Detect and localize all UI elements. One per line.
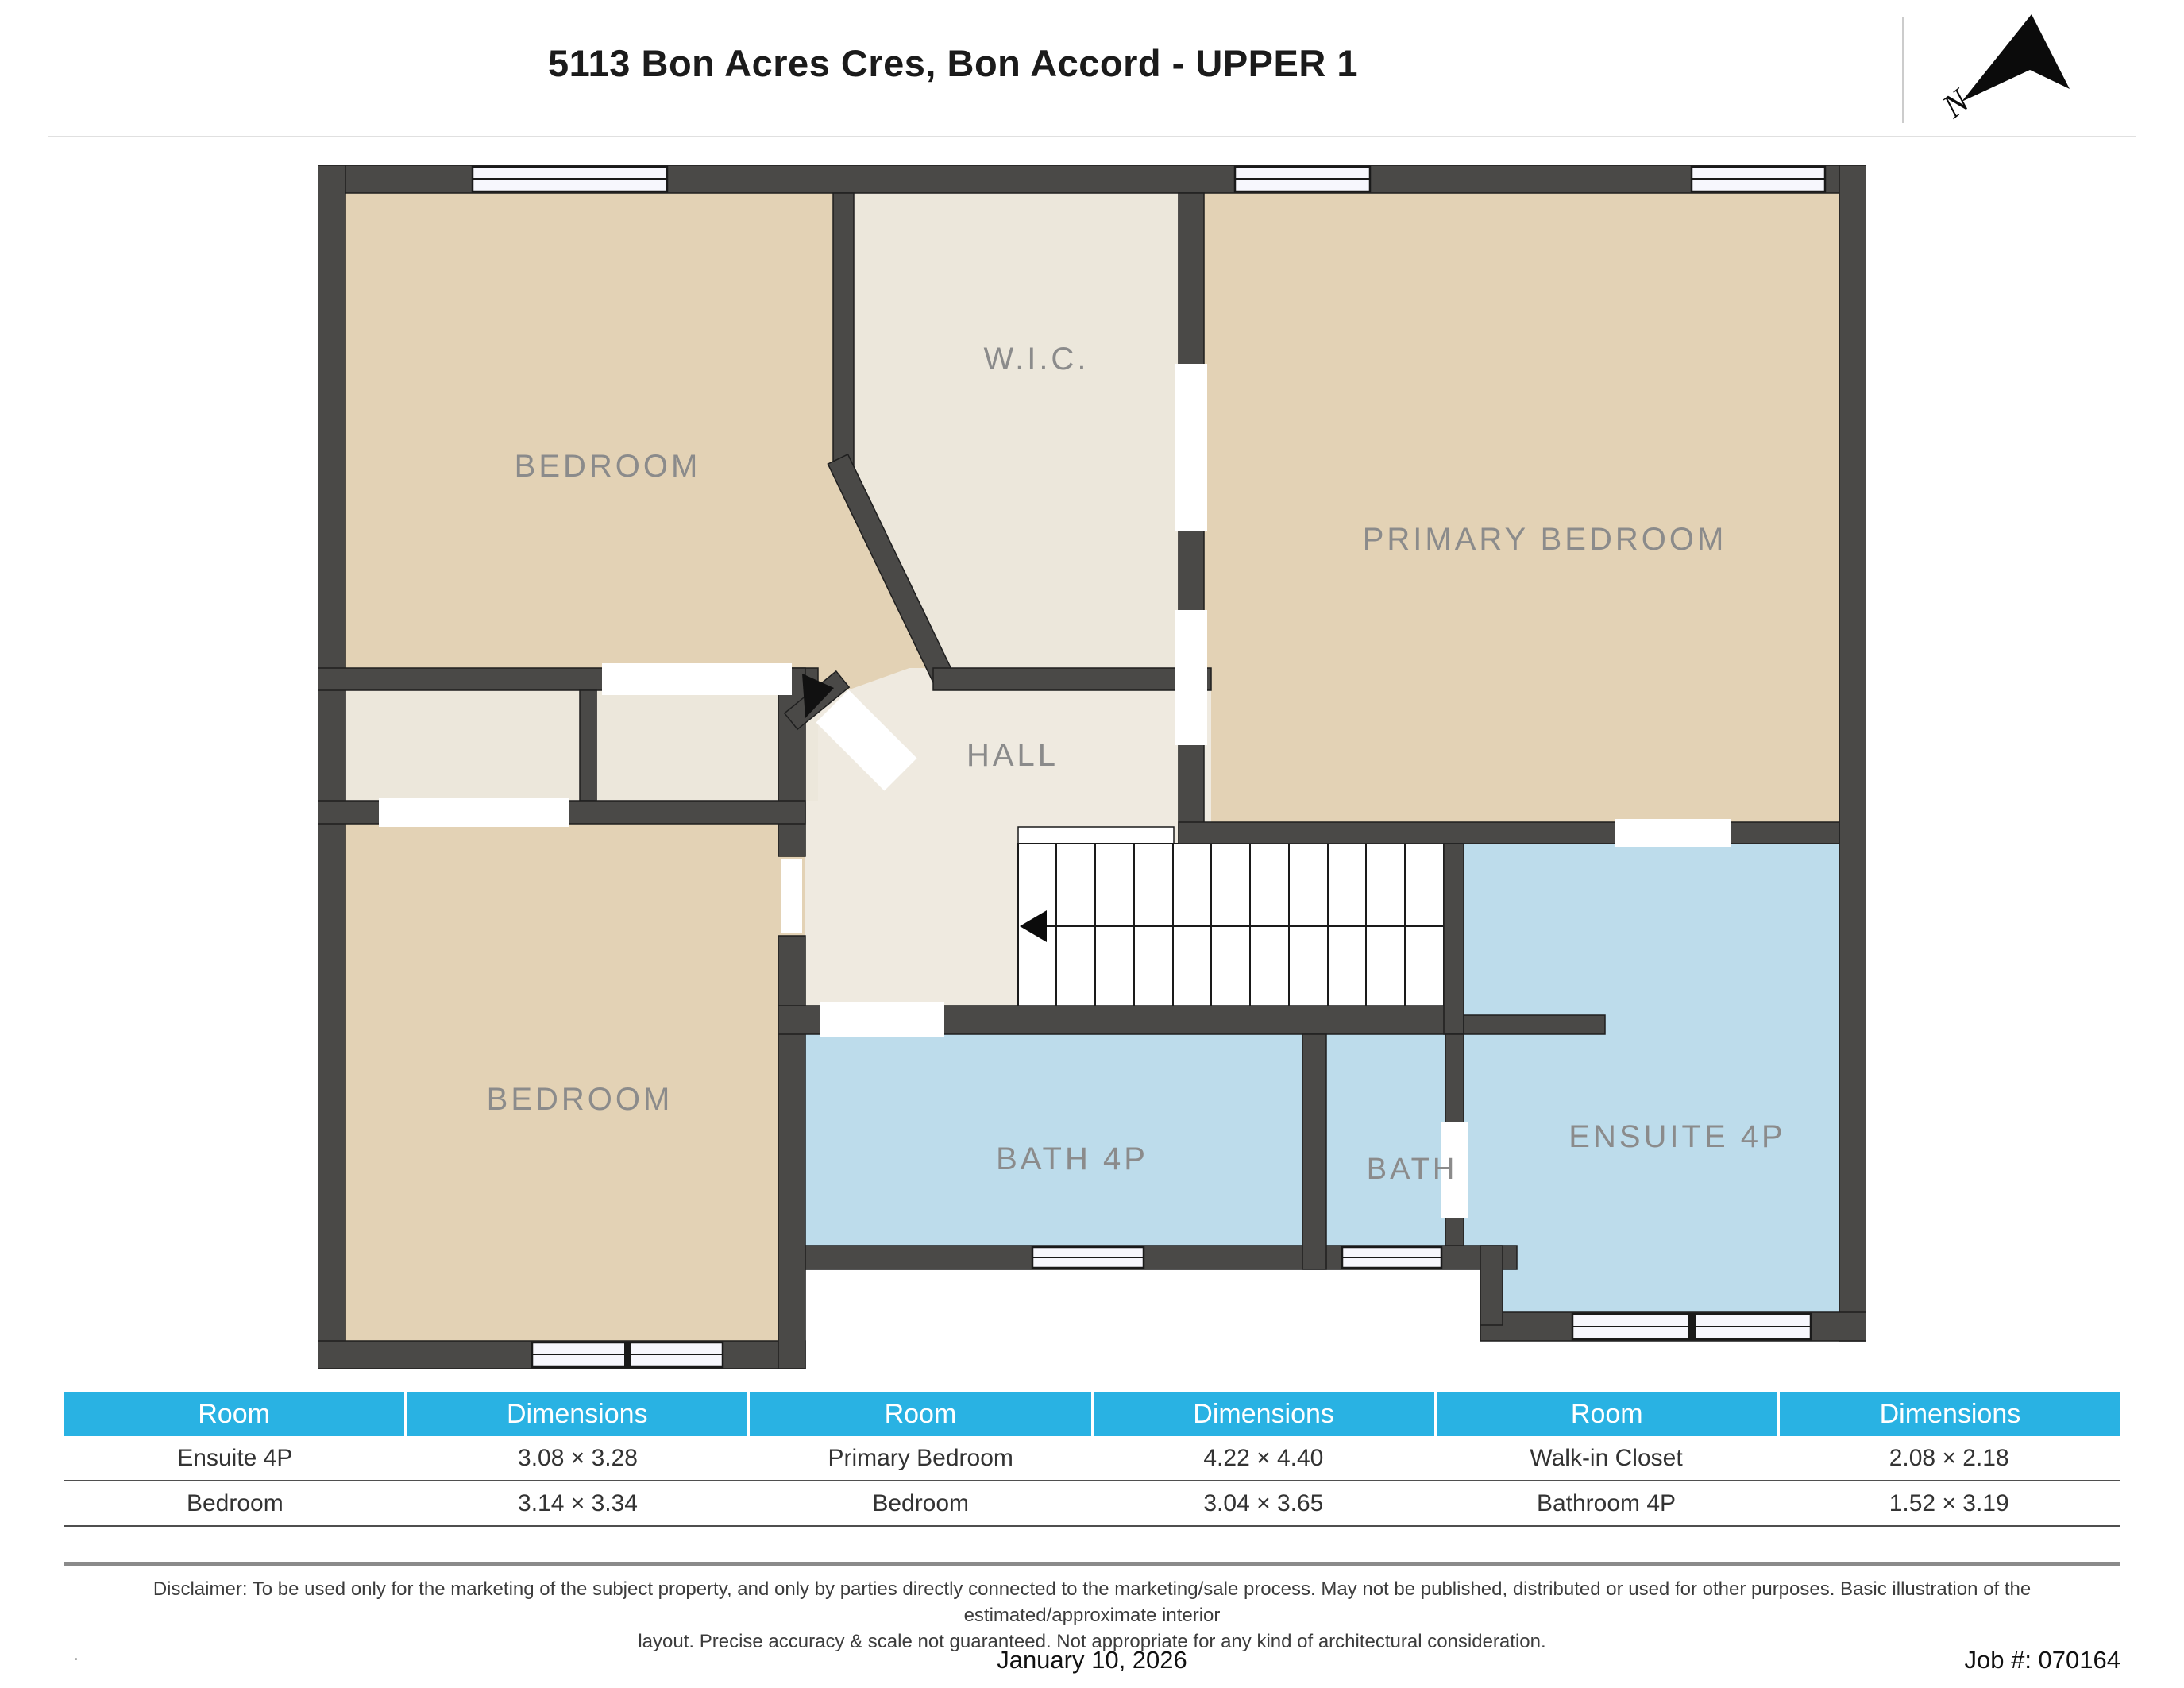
table-cell-room: Bedroom — [749, 1481, 1092, 1525]
door-primary-bedroom — [1175, 610, 1207, 745]
table-header-cell: Room — [1437, 1392, 1780, 1436]
wall-bath-divider — [1302, 1034, 1326, 1269]
table-cell-room: Bedroom — [64, 1481, 407, 1525]
opening-closet-left — [379, 798, 569, 827]
disclaimer: Disclaimer: To be used only for the mark… — [64, 1576, 2120, 1655]
room-fill-ensuite — [1464, 844, 1839, 1312]
floor-plan-svg: BEDROOM W.I.C. PRIMARY BEDROOM HALL BEDR… — [318, 165, 1866, 1374]
label-ensuite: ENSUITE 4P — [1569, 1119, 1785, 1154]
table-header-cell: Room — [750, 1392, 1093, 1436]
table-cell-dimensions: 3.04 × 3.65 — [1092, 1481, 1435, 1525]
label-primary-bedroom: PRIMARY BEDROOM — [1363, 522, 1727, 557]
disclaimer-line1: Disclaimer: To be used only for the mark… — [153, 1578, 2031, 1626]
table-bottom-rule — [64, 1562, 2120, 1566]
door-bedroom2 — [781, 859, 802, 933]
label-hall: HALL — [967, 738, 1059, 773]
table-cell-room: Ensuite 4P — [64, 1436, 407, 1480]
floor-plan: BEDROOM W.I.C. PRIMARY BEDROOM HALL BEDR… — [318, 165, 1866, 1374]
opening-closet-right — [602, 663, 792, 695]
label-wic: W.I.C. — [984, 342, 1090, 377]
table-row: Bedroom 3.14 × 3.34 Bedroom 3.04 × 3.65 … — [64, 1481, 2120, 1527]
door-bath-4p — [820, 1002, 944, 1037]
table-cell-dimensions: 1.52 × 3.19 — [1777, 1481, 2120, 1525]
table-row: Ensuite 4P 3.08 × 3.28 Primary Bedroom 4… — [64, 1436, 2120, 1481]
wall-wic-left — [833, 193, 854, 471]
table-header-cell: Dimensions — [1780, 1392, 2120, 1436]
window-bedroom2-post — [624, 1342, 631, 1367]
header-divider — [1902, 17, 1904, 123]
table-header-cell: Dimensions — [1094, 1392, 1437, 1436]
label-bath: BATH — [1367, 1153, 1458, 1186]
table-header-row: Room Dimensions Room Dimensions Room Dim… — [64, 1392, 2120, 1436]
wall-left — [318, 165, 345, 1369]
wall-ensuite-lower-left — [1480, 1246, 1503, 1325]
wall-bedroom2-right — [778, 936, 805, 1369]
footer-job-number: Job #: 070164 — [1964, 1646, 2120, 1674]
table-header-cell: Room — [64, 1392, 407, 1436]
room-fill-primary-bedroom — [1199, 193, 1839, 844]
table-cell-dimensions: 4.22 × 4.40 — [1092, 1436, 1435, 1480]
label-bedroom-top-left: BEDROOM — [515, 449, 701, 484]
door-ensuite — [1615, 819, 1731, 847]
footer-date: January 10, 2026 — [0, 1646, 2184, 1674]
table-cell-room: Primary Bedroom — [749, 1436, 1092, 1480]
table-header-cell: Dimensions — [407, 1392, 750, 1436]
label-bedroom-bottom-left: BEDROOM — [487, 1082, 673, 1117]
wall-ensuite-stub — [1464, 1015, 1605, 1034]
wall-primary-bottom — [1179, 822, 1839, 844]
stair-landing — [1018, 827, 1174, 844]
north-arrow-shape — [1962, 14, 2070, 102]
header-rule — [48, 136, 2136, 137]
page-title: 5113 Bon Acres Cres, Bon Accord - UPPER … — [0, 41, 1906, 85]
wall-wic-bottom — [933, 668, 1211, 690]
table-cell-dimensions: 2.08 × 2.18 — [1777, 1436, 2120, 1480]
north-letter: N — [1935, 82, 1978, 126]
window-ensuite-post — [1688, 1314, 1696, 1339]
north-arrow-icon: N — [1930, 10, 2120, 129]
wall-closet-right — [778, 668, 805, 856]
table-cell-dimensions: 3.14 × 3.34 — [407, 1481, 750, 1525]
wall-closet-divider — [580, 690, 596, 801]
door-wic — [1175, 364, 1207, 531]
wall-right — [1839, 165, 1866, 1341]
wall-stair-right — [1444, 844, 1464, 1034]
table-cell-dimensions: 3.08 × 3.28 — [407, 1436, 750, 1480]
rooms-table: Room Dimensions Room Dimensions Room Dim… — [64, 1392, 2120, 1527]
label-bath-4p: BATH 4P — [996, 1141, 1148, 1176]
table-cell-room: Bathroom 4P — [1435, 1481, 1778, 1525]
table-cell-room: Walk-in Closet — [1435, 1436, 1778, 1480]
